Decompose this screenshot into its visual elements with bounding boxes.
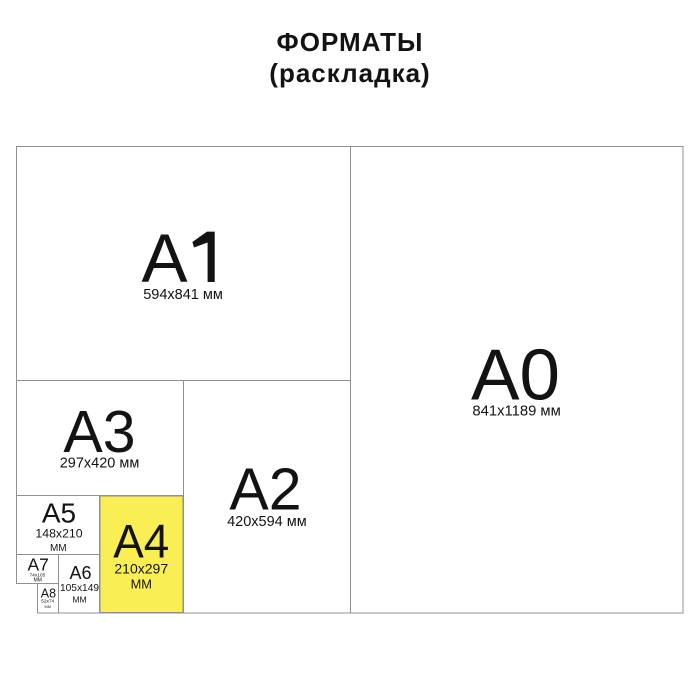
svg-text:297х420 мм: 297х420 мм (60, 456, 140, 472)
svg-text:594х841 мм: 594х841 мм (143, 287, 223, 303)
svg-text:148х210: 148х210 (35, 527, 82, 541)
svg-text:52х74: 52х74 (41, 599, 54, 605)
svg-text:210х297: 210х297 (114, 561, 168, 577)
svg-text:ММ: ММ (131, 577, 152, 592)
svg-text:А5: А5 (42, 498, 76, 529)
svg-text:ММ: ММ (72, 594, 86, 604)
svg-text:ММ: ММ (45, 605, 51, 609)
svg-text:А2: А2 (229, 457, 301, 523)
svg-text:420х594 мм: 420х594 мм (227, 514, 307, 530)
svg-text:ММ: ММ (34, 578, 42, 584)
svg-text:А: А (142, 220, 188, 297)
svg-text:ММ: ММ (50, 543, 67, 554)
svg-text:841х1189 мм: 841х1189 мм (472, 404, 560, 420)
svg-text:А6: А6 (69, 563, 91, 583)
svg-text:А7: А7 (27, 555, 48, 575)
svg-text:105х149: 105х149 (60, 583, 99, 594)
svg-text:А8: А8 (41, 587, 56, 601)
